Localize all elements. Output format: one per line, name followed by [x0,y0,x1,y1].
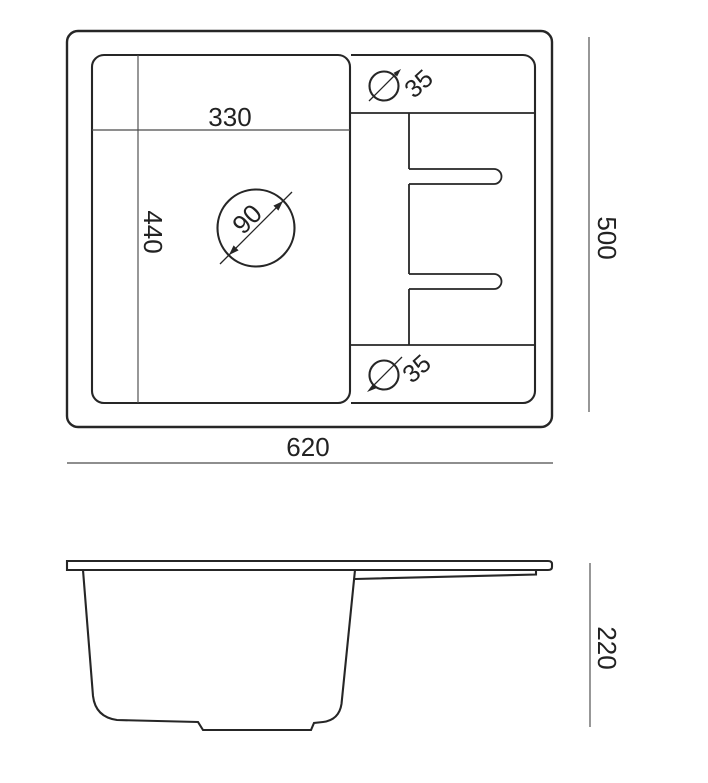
side-rim-outline [67,561,552,570]
top-view: 330 440 90 35 35 [67,31,552,427]
drainer-groove-lower [409,274,502,289]
sink-technical-drawing: 330 440 90 35 35 [0,0,708,783]
tap-hole-top-label: 35 [399,64,438,103]
overall-depth-label: 500 [592,216,622,259]
bowl-width-label: 330 [208,102,251,132]
overall-width-label: 620 [286,432,329,462]
side-view: 220 [67,561,622,730]
tap-hole-top: 35 [369,64,439,103]
overall-height-label: 220 [592,626,622,669]
drawing-svg: 330 440 90 35 35 [0,0,708,783]
drainer-groove-upper [409,169,502,184]
bowl-depth-label: 440 [138,210,168,253]
drain-diameter-label: 90 [226,198,268,240]
tap-hole-bottom: 35 [367,349,437,392]
side-bowl-outline [83,570,355,730]
side-drainer-underside [355,570,536,579]
tap-hole-bottom-label: 35 [397,349,436,388]
drainer-outline [351,55,535,403]
